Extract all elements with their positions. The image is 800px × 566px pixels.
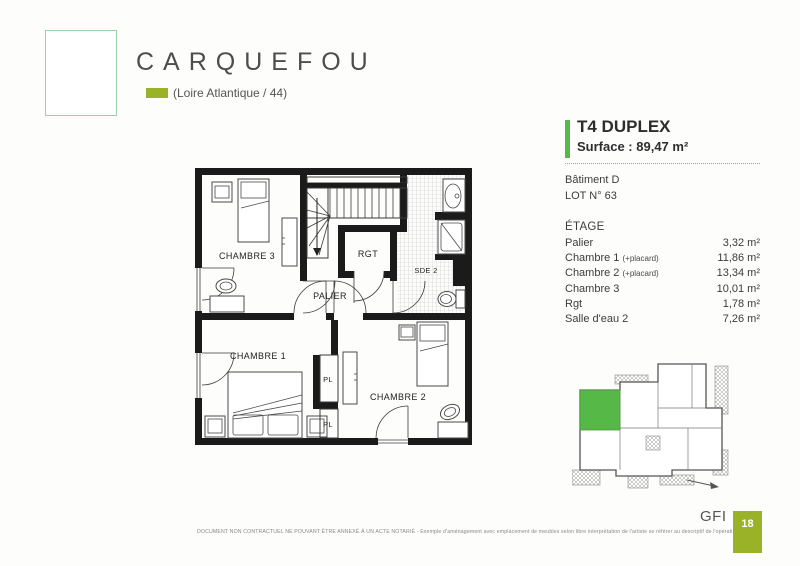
floor-plan: CHAMBRE 3 RGT SDE 2 PALIER CHAMBRE 1 PL … [188,158,480,452]
label-pl-top: PL [323,375,333,384]
label-sde2: SDE 2 [414,266,437,275]
label-palier: PALIER [313,291,347,301]
city-title: CARQUEFOU [136,48,377,77]
label-rgt: RGT [358,249,378,259]
chambre3-furniture [210,179,297,312]
department-row: (Loire Atlantique / 44) [146,86,287,100]
unit-info-panel: T4 DUPLEX Surface : 89,47 m² Bâtiment D … [565,118,760,328]
green-swatch-icon [146,88,168,98]
legal-disclaimer: DOCUMENT NON CONTRACTUEL NE POUVANT ÊTRE… [197,529,739,535]
label-chambre2: CHAMBRE 2 [370,392,426,402]
room-row: Palier 3,32 m² [565,236,760,251]
level-label: ÉTAGE [565,221,760,233]
room-row: Rgt 1,78 m² [565,297,760,312]
lot-label: LOT N° 63 [565,189,760,205]
developer-logo [45,30,117,116]
unit-type: T4 DUPLEX [577,118,688,137]
room-row: Chambre 3 10,01 m² [565,282,760,297]
room-row: Salle d'eau 2 7,26 m² [565,312,760,327]
brochure-page: CARQUEFOU (Loire Atlantique / 44) [0,0,800,566]
building-label: Bâtiment D [565,173,760,189]
brand-logo: GFI [700,508,727,525]
chambre2-furniture [320,322,468,438]
accent-bar [565,120,570,158]
label-chambre1: CHAMBRE 1 [230,351,286,361]
dotted-divider [565,163,760,164]
room-row: Chambre 1 (+placard) 11,86 m² [565,251,760,266]
room-area-table: Palier 3,32 m² Chambre 1 (+placard) 11,8… [565,236,760,328]
label-pl-bottom: PL [323,420,333,429]
unit-surface: Surface : 89,47 m² [577,139,688,154]
page-number-badge: 18 [733,511,762,553]
key-plan [572,358,737,498]
label-chambre3: CHAMBRE 3 [219,251,275,261]
keyplan-highlighted-unit [580,390,620,430]
chambre1-furniture [205,372,327,438]
room-row: Chambre 2 (+placard) 13,34 m² [565,266,760,281]
keyplan-stairs [646,436,660,450]
department-label: (Loire Atlantique / 44) [173,86,287,100]
